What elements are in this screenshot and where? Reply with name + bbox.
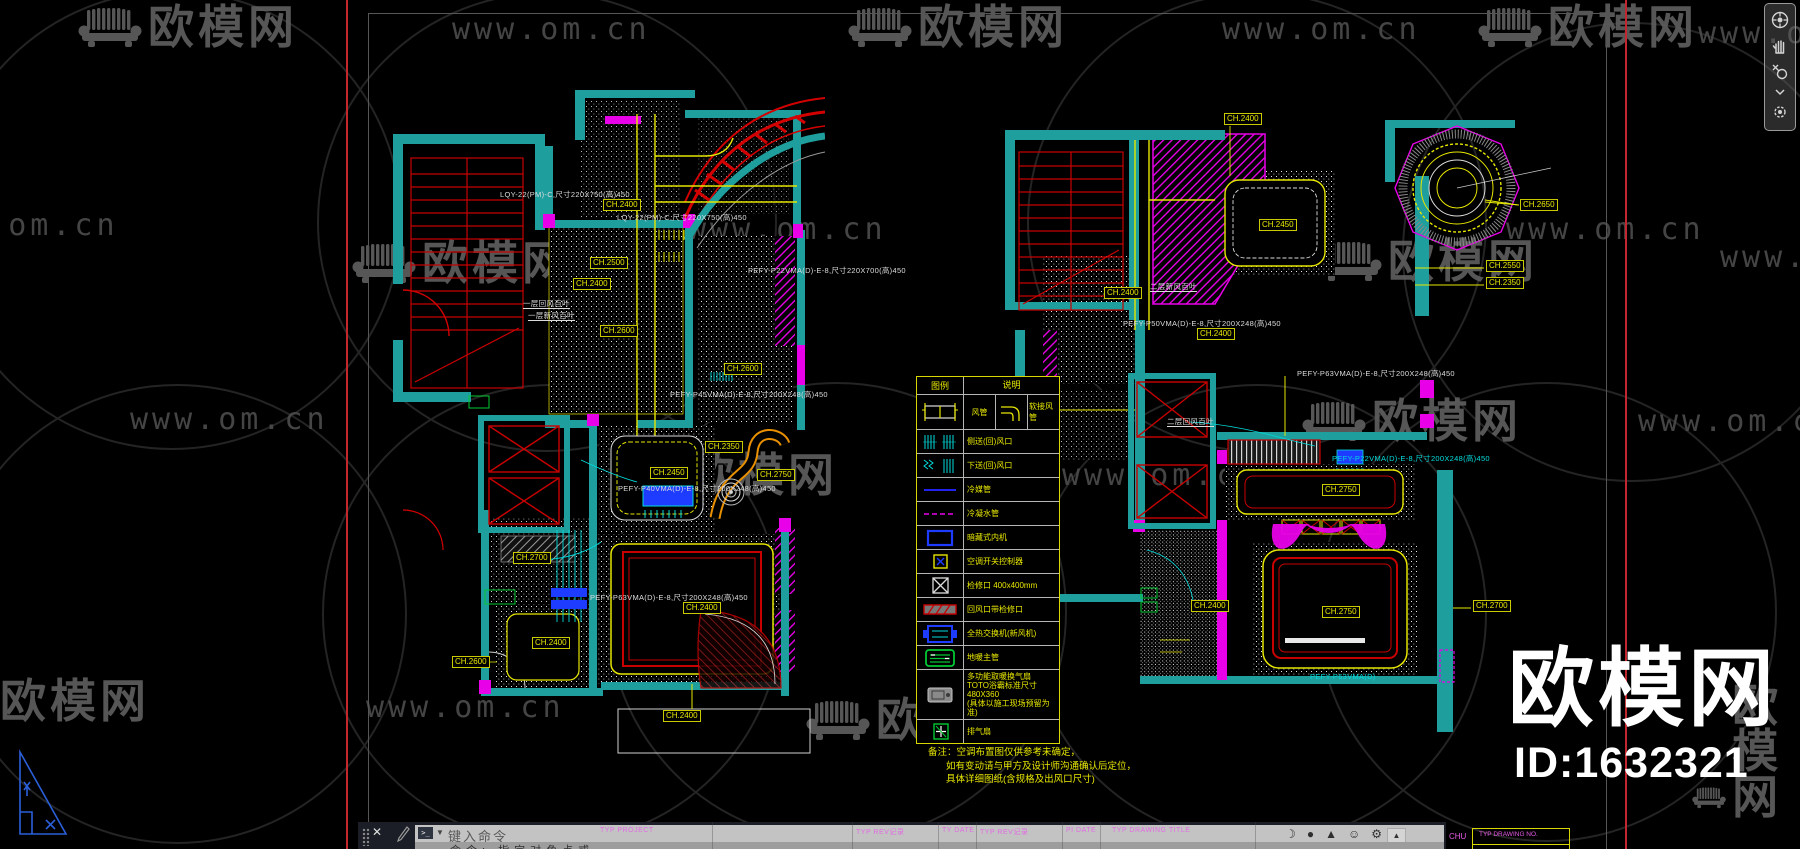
legend-row-label: 全热交换机(新风机) [964, 622, 1059, 645]
command-input-panel[interactable]: >_ ▼ 键入命令 ☽●▲☺⚙ ▲ [415, 825, 1444, 842]
exhaust-fan-symbol [917, 720, 964, 743]
watermark-url-text: www.om.cn [130, 402, 329, 437]
ctrl-panel-symbol [917, 550, 964, 573]
equipment-annotation-text: 一层回风百叶 [523, 299, 570, 309]
autocad-viewport: { "watermark": { "brand": "欧模网", "url": … [0, 0, 1800, 849]
model-id-text: ID:1632321 [1514, 742, 1749, 785]
legend-table: 图例 说明 风管 软接风管 侧送(回)风口下送(回)风口冷媒管冷凝水管暗藏式内机… [916, 376, 1060, 744]
hrv-symbol [917, 622, 964, 645]
legend-row-label: 下送(回)风口 [964, 454, 1059, 477]
box-x-symbol [917, 574, 964, 597]
equipment-annotation-text: 一层新风百叶 [528, 311, 575, 321]
titleblock-text: TYP REV记录 [980, 827, 1028, 837]
titleblock-code: CHU [1449, 832, 1466, 841]
legend-duct-row: 风管 软接风管 [917, 394, 1059, 429]
legend-row: 全热交换机(新风机) [917, 621, 1059, 645]
steering-wheel-icon[interactable] [1770, 10, 1790, 30]
legend-row-label: 暗藏式内机 [964, 526, 1059, 549]
chevron-down-icon[interactable] [1770, 88, 1790, 96]
elbow-duct-icon [995, 395, 1027, 429]
titleblock-text: TYP REV记录 [856, 827, 904, 837]
red-guide-line-left [346, 0, 348, 849]
ceiling-height-label: CH.2400 [683, 602, 721, 614]
titleblock-divider [852, 822, 853, 849]
equipment-annotation-text: 二层新风百叶 [1150, 282, 1197, 292]
line-solid-blue-symbol [917, 478, 964, 501]
ceiling-height-label: CH.2350 [1486, 277, 1524, 289]
ceiling-height-label: CH.2500 [590, 257, 628, 269]
ceiling-height-label: CH.2600 [600, 325, 638, 337]
ceiling-height-label: CH.2550 [1486, 260, 1524, 272]
legend-row-label: 冷媒管 [964, 478, 1059, 501]
ceiling-height-label: CH.2450 [650, 467, 688, 479]
ceiling-height-label: CH.2400 [1104, 287, 1142, 299]
ceiling-height-label: CH.2400 [663, 710, 701, 722]
note-line: 如有变动请与甲方及设计师沟通确认后定位， [928, 760, 1148, 774]
duct-symbol [917, 395, 964, 429]
ceiling-height-label: CH.2400 [1191, 600, 1229, 612]
legend-row: 冷媒管 [917, 477, 1059, 501]
legend-row-label: 检修口 400x400mm [964, 574, 1059, 597]
legend-row: 空调开关控制器 [917, 549, 1059, 573]
titleblock-divider [1255, 822, 1256, 849]
titleblock-fragment: CHU TYP DRAWING NO. [1446, 822, 1646, 849]
equipment-annotation-text: LQY-22(PM)-C,尺寸220X750(高)450 [617, 213, 747, 222]
ceiling-height-label: CH.2700 [1473, 600, 1511, 612]
equipment-annotation-text: PEFY-P22VMA(D)-E-8,尺寸200X248(高)450 [1332, 454, 1490, 463]
equipment-annotation-text: PEFY-P22VMA(D)-E-8,尺寸220X700(高)450 [748, 266, 906, 275]
titleblock-divider [938, 822, 939, 849]
ceiling-height-label: CH.2400 [532, 637, 570, 649]
bath-heater-symbol [917, 670, 964, 719]
duct-label: 风管 [964, 395, 995, 429]
titleblock-text: PI DATE [1066, 827, 1096, 834]
titleblock-divider [712, 822, 713, 849]
legend-row-label: 多功能取暖换气扇TOTO浴霸标准尺寸480X360(具体以施工现场预留为准) [964, 670, 1059, 719]
ceiling-height-label: CH.2400 [1197, 328, 1235, 340]
ucs-axis-icon [8, 744, 78, 842]
legend-header-symbol: 图例 [917, 377, 964, 394]
legend-row: 检修口 400x400mm [917, 573, 1059, 597]
rect-blue-symbol [917, 526, 964, 549]
legend-row-label: 侧送(回)风口 [964, 430, 1059, 453]
site-watermark-title: 欧模网 [1508, 646, 1778, 732]
legend-header-desc: 说明 [964, 377, 1059, 394]
ceiling-height-label: CH.2750 [1322, 606, 1360, 618]
titleblock-text: TYP DRAWING TITLE [1112, 827, 1190, 834]
duct-desc-cells: 风管 软接风管 [964, 395, 1059, 429]
equipment-annotation-text: PEFY-P50VMA(D)-E-8,尺寸200X248(高)450 [1123, 319, 1281, 328]
chevron-down-icon[interactable]: ▼ [436, 828, 444, 837]
watermark-url-text: www.om.cn [1720, 240, 1800, 275]
equipment-annotation-text: PEFY-P40VMA(D)-E-8,尺寸200X248(高)450 [618, 484, 776, 493]
ceiling-height-label: CH.2600 [724, 363, 762, 375]
ceiling-height-label: CH.2450 [1259, 219, 1297, 231]
flex-duct-label: 软接风管 [1027, 395, 1059, 429]
ceiling-height-label: CH.2600 [452, 656, 490, 668]
watermark-brand-text: 欧模网 [148, 4, 298, 50]
titleblock-text: TYP PROJECT [600, 827, 654, 834]
legend-row-label: 冷凝水管 [964, 502, 1059, 525]
face-icon[interactable]: ☺ [1348, 827, 1360, 841]
legend-row-label: 回风口带检修口 [964, 598, 1059, 621]
legend-row: 下送(回)风口 [917, 453, 1059, 477]
titleblock-divider [1062, 822, 1063, 849]
mountain-icon[interactable]: ▲ [1325, 827, 1337, 841]
equipment-annotation-text: PEFY-P63VMA(D) [1310, 672, 1376, 681]
pan-hand-icon[interactable] [1770, 36, 1790, 56]
ceiling-height-label: CH.2700 [513, 552, 551, 564]
watermark-logo: 欧模网 [0, 678, 150, 724]
zoom-search-icon[interactable] [1770, 62, 1790, 82]
watermark-brand-text: 欧模网 [0, 678, 150, 724]
ceiling-height-label: CH.2350 [705, 441, 743, 453]
legend-row: 暗藏式内机 [917, 525, 1059, 549]
legend-row-label: 空调开关控制器 [964, 550, 1059, 573]
legend-header: 图例 说明 [917, 377, 1059, 394]
navigation-bar [1764, 3, 1796, 131]
watermark-url-text: www.om.cn [0, 208, 119, 243]
equipment-annotation-text: LQY-22(PM)-C,尺寸220X750(高)450 [500, 190, 630, 199]
ceiling-height-label: CH.2400 [603, 199, 641, 211]
legend-row-label: 排气扇 [964, 720, 1059, 743]
dot-icon[interactable]: ● [1307, 827, 1314, 841]
ceiling-height-label: CH.2650 [1520, 199, 1558, 211]
equipment-annotation-text: 二层回风百叶 [1167, 417, 1214, 427]
grille-down-symbol [917, 454, 964, 477]
equipment-annotation-text: PEFY-P63VMA(D)-E-8,尺寸200X248(高)450 [590, 593, 748, 602]
legend-row: 多功能取暖换气扇TOTO浴霸标准尺寸480X360(具体以施工现场预留为准) [917, 669, 1059, 719]
command-window[interactable]: ✕ >_ ▼ 键入命令 ☽●▲☺⚙ ▲ 命令: 指定对角点或 TYP PROJE… [358, 822, 1446, 849]
status-icon-cluster: ☽●▲☺⚙ [1285, 827, 1382, 841]
watermark-logo: 欧模网 [78, 4, 298, 50]
legend-row-label: 地暖主管 [964, 646, 1059, 669]
drawing-no-label: TYP DRAWING NO. [1479, 831, 1538, 838]
crescent-icon[interactable]: ☽ [1285, 827, 1296, 841]
gear-icon[interactable]: ⚙ [1371, 827, 1382, 841]
command-window-grip[interactable] [362, 828, 370, 846]
command-history-line: 命令: 指定对角点或 [415, 842, 1444, 849]
close-icon[interactable]: ✕ [372, 825, 382, 839]
right-floor-plan-drawing [985, 80, 1555, 760]
equipment-annotation-text: PEFY-P63VMA(D)-E-8,尺寸200X248(高)450 [1297, 369, 1455, 378]
drawing-no-box: TYP DRAWING NO. [1472, 828, 1570, 849]
legend-row: 回风口带检修口 [917, 597, 1059, 621]
titleblock-divider [976, 822, 977, 849]
legend-row: 排气扇 [917, 719, 1059, 743]
grille-side-symbol [917, 430, 964, 453]
titleblock-divider [1100, 822, 1101, 849]
note-line: 具体详细图纸(含规格及出风口尺寸) [928, 773, 1148, 787]
line-dash-magenta-symbol [917, 502, 964, 525]
manifold-symbol [917, 646, 964, 669]
titleblock-text: TY DATE [942, 827, 974, 834]
legend-row: 冷凝水管 [917, 501, 1059, 525]
legend-notes: 备注：空调布置图仅供参考未确定， 如有变动请与甲方及设计师沟通确认后定位， 具体… [928, 746, 1148, 787]
ceiling-height-label: CH.2750 [757, 469, 795, 481]
legend-row: 地暖主管 [917, 645, 1059, 669]
note-line: 备注：空调布置图仅供参考未确定， [928, 746, 1148, 760]
ceiling-height-label: CH.2400 [1224, 113, 1262, 125]
sofa-icon [78, 6, 142, 50]
gear-icon[interactable] [1770, 102, 1790, 122]
return-grille-symbol [917, 598, 964, 621]
ceiling-height-label: CH.2400 [573, 278, 611, 290]
pencil-icon [396, 826, 410, 842]
command-prompt-icon[interactable]: >_ [418, 827, 433, 839]
equipment-annotation-text: PEFY-P45VMA(D)-E-8,尺寸200X248(高)450 [670, 390, 828, 399]
legend-row: 侧送(回)风口 [917, 429, 1059, 453]
watermark-url-text: www.om.cn [1638, 404, 1800, 439]
ceiling-height-label: CH.2750 [1322, 484, 1360, 496]
